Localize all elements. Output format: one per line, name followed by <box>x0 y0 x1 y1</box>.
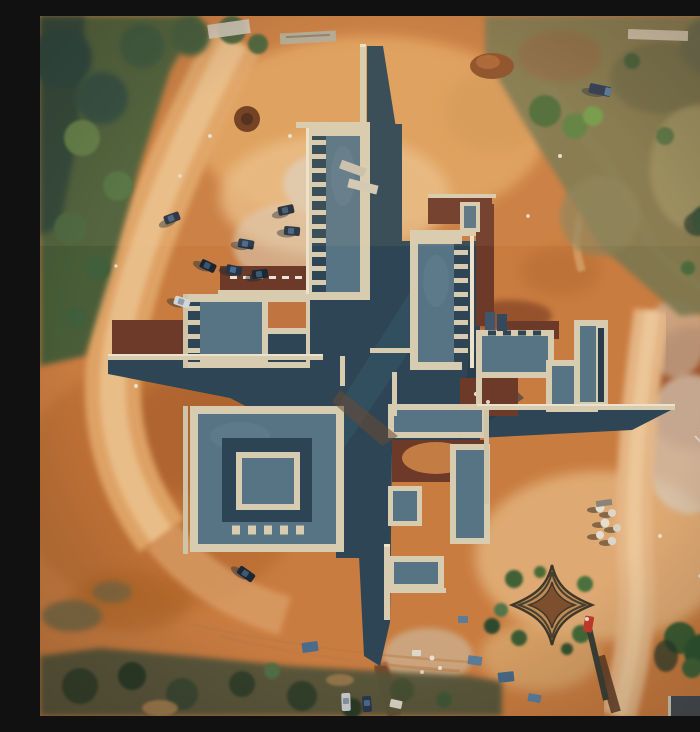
scene-canvas <box>40 16 700 716</box>
aerial-photo-scene <box>40 16 700 716</box>
vignette-overlay <box>40 16 700 716</box>
